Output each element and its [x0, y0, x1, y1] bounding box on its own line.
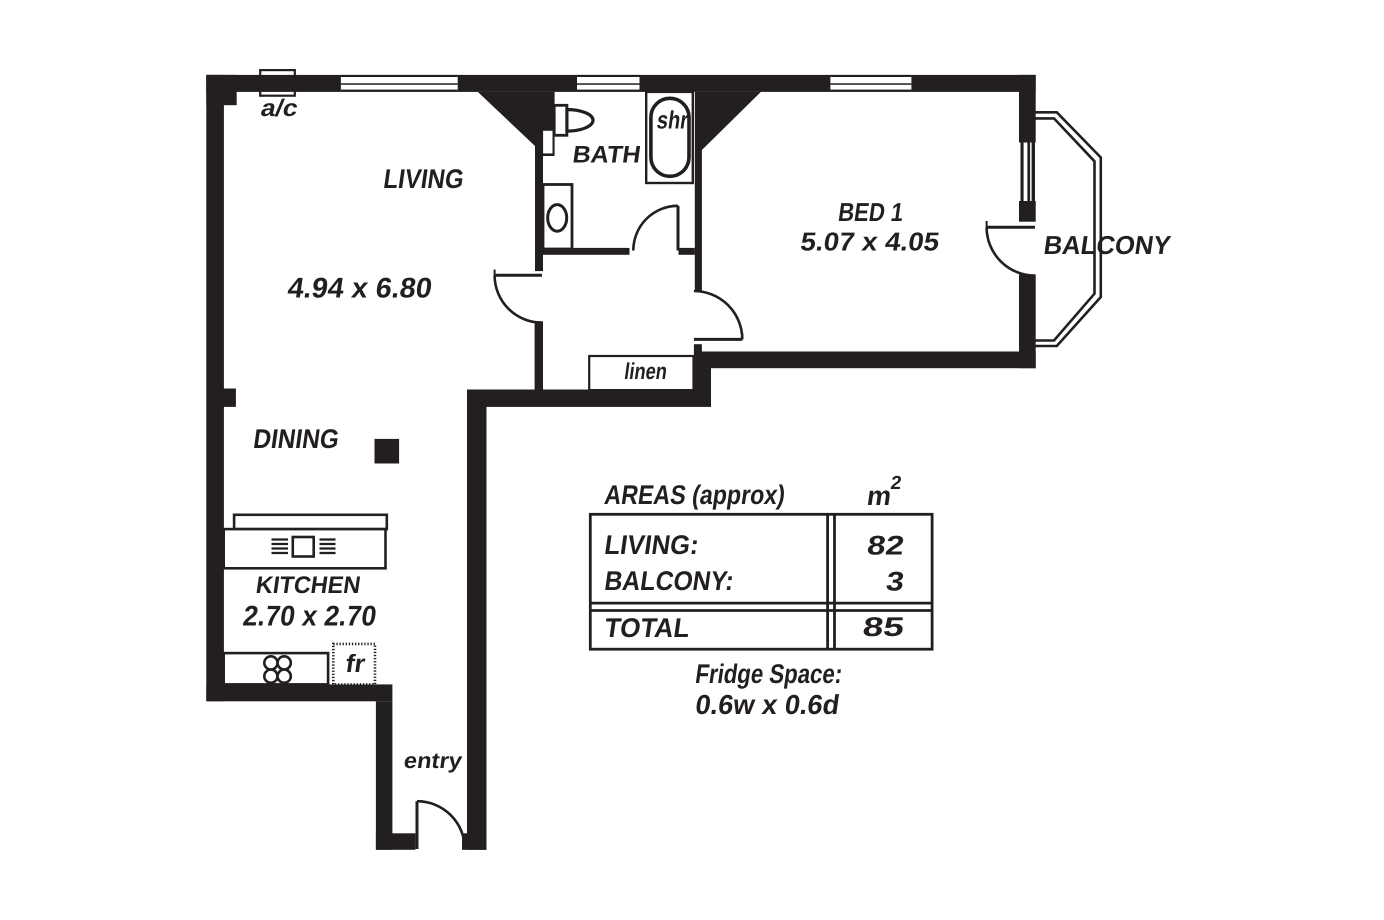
svg-text:LIVING:: LIVING:	[603, 529, 701, 560]
svg-text:linen: linen	[623, 358, 669, 384]
svg-text:BED 1: BED 1	[836, 197, 905, 227]
svg-text:BATH: BATH	[571, 142, 643, 169]
svg-text:4.94 x 6.80: 4.94 x 6.80	[286, 273, 434, 305]
svg-text:LIVING: LIVING	[382, 163, 466, 194]
svg-text:shr: shr	[655, 107, 690, 135]
svg-text:entry: entry	[402, 748, 464, 773]
svg-text:AREAS (approx): AREAS (approx)	[603, 479, 788, 510]
svg-text:BALCONY: BALCONY	[1042, 230, 1173, 260]
svg-text:85: 85	[861, 611, 906, 642]
svg-text:m: m	[865, 480, 893, 511]
svg-text:a/c: a/c	[258, 95, 300, 122]
svg-text:5.07 x 4.05: 5.07 x 4.05	[799, 226, 942, 256]
svg-text:0.6w x 0.6d: 0.6w x 0.6d	[694, 689, 842, 720]
svg-text:Fridge Space:: Fridge Space:	[694, 658, 845, 689]
svg-text:2.70 x 2.70: 2.70 x 2.70	[241, 601, 378, 633]
svg-text:DINING: DINING	[252, 423, 342, 454]
svg-text:KITCHEN: KITCHEN	[254, 572, 362, 599]
svg-text:TOTAL: TOTAL	[603, 612, 692, 643]
svg-text:BALCONY:: BALCONY:	[603, 565, 736, 596]
svg-text:82: 82	[865, 530, 906, 561]
